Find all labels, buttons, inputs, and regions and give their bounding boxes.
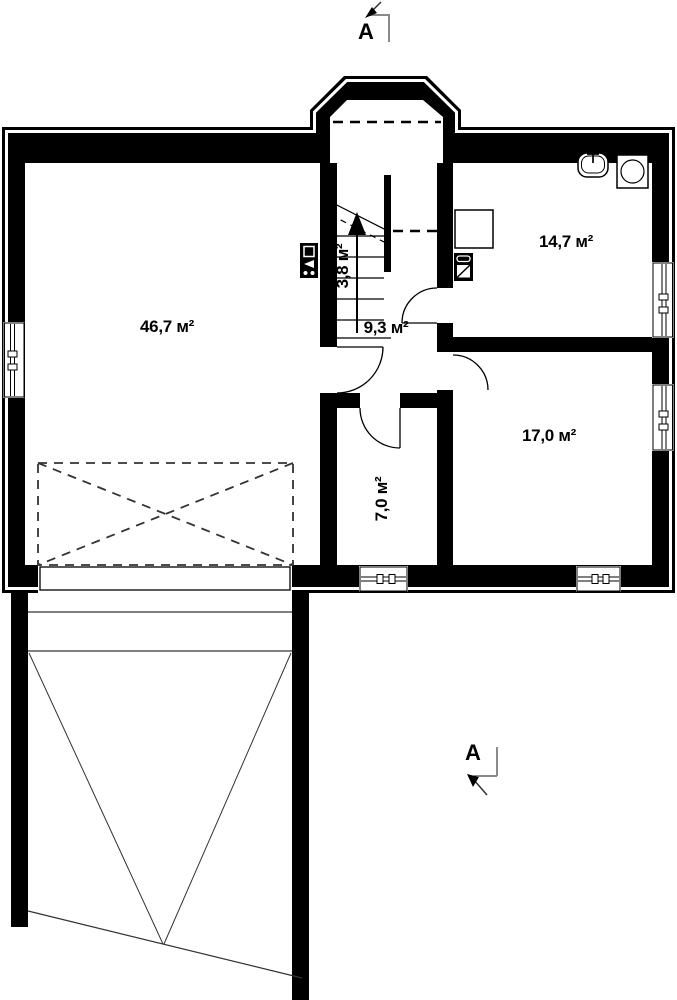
floor-plan-drawing bbox=[0, 0, 677, 1000]
window-right-top bbox=[652, 262, 674, 338]
driveway-ramp bbox=[11, 593, 309, 1000]
room-area-label-utility-room: 14,7 м² bbox=[539, 232, 593, 252]
vent-duct-icon-right bbox=[454, 253, 473, 281]
window-bottom-right bbox=[576, 566, 621, 592]
window-right-bottom bbox=[652, 384, 674, 451]
washing-machine-icon bbox=[617, 155, 648, 188]
floor-plan: 46,7 м² 9,3 м² 3,8 м² 14,7 м² 17,0 м² 7,… bbox=[0, 0, 677, 1000]
room-area-label-hallway: 9,3 м² bbox=[364, 318, 409, 338]
room-area-label-storage: 7,0 м² bbox=[372, 477, 392, 522]
room-area-label-staircase: 3,8 м² bbox=[333, 244, 353, 289]
section-marker-top-label: A bbox=[358, 19, 374, 45]
window-bottom-left bbox=[359, 566, 408, 592]
exterior-walls bbox=[2, 76, 675, 593]
section-marker-bottom-label: A bbox=[465, 740, 481, 766]
window-left bbox=[4, 322, 25, 398]
stair-railing-wall bbox=[384, 175, 391, 272]
vent-duct-icon-left bbox=[300, 243, 318, 278]
sink-icon bbox=[578, 150, 608, 177]
room-area-label-garage: 46,7 м² bbox=[140, 317, 194, 337]
shaft-square bbox=[455, 210, 493, 248]
room-area-label-room: 17,0 м² bbox=[522, 426, 576, 446]
garage-door bbox=[38, 565, 292, 593]
